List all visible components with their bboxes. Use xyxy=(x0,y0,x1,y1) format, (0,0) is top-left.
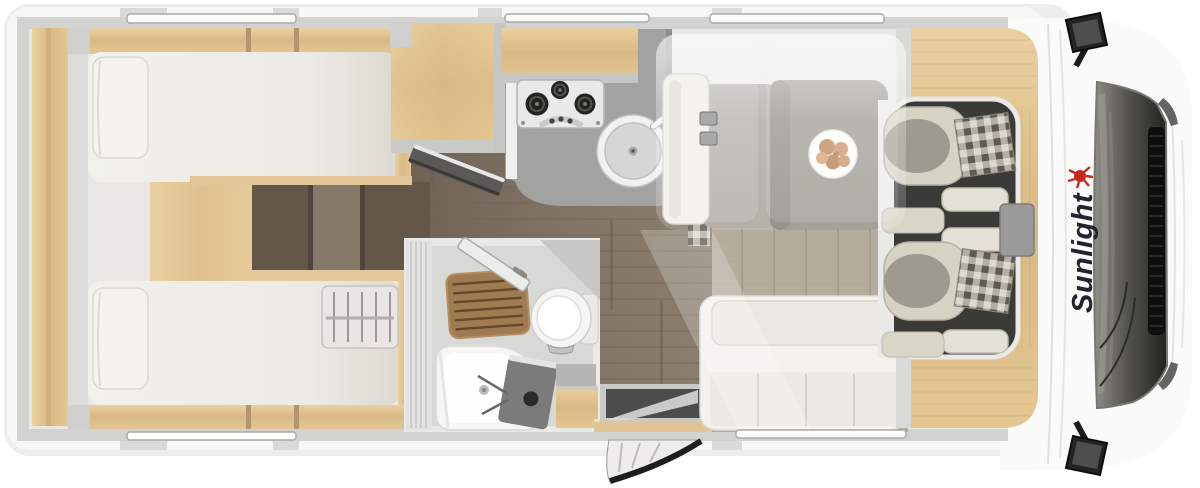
svg-text:Sunlight: Sunlight xyxy=(1067,192,1099,313)
